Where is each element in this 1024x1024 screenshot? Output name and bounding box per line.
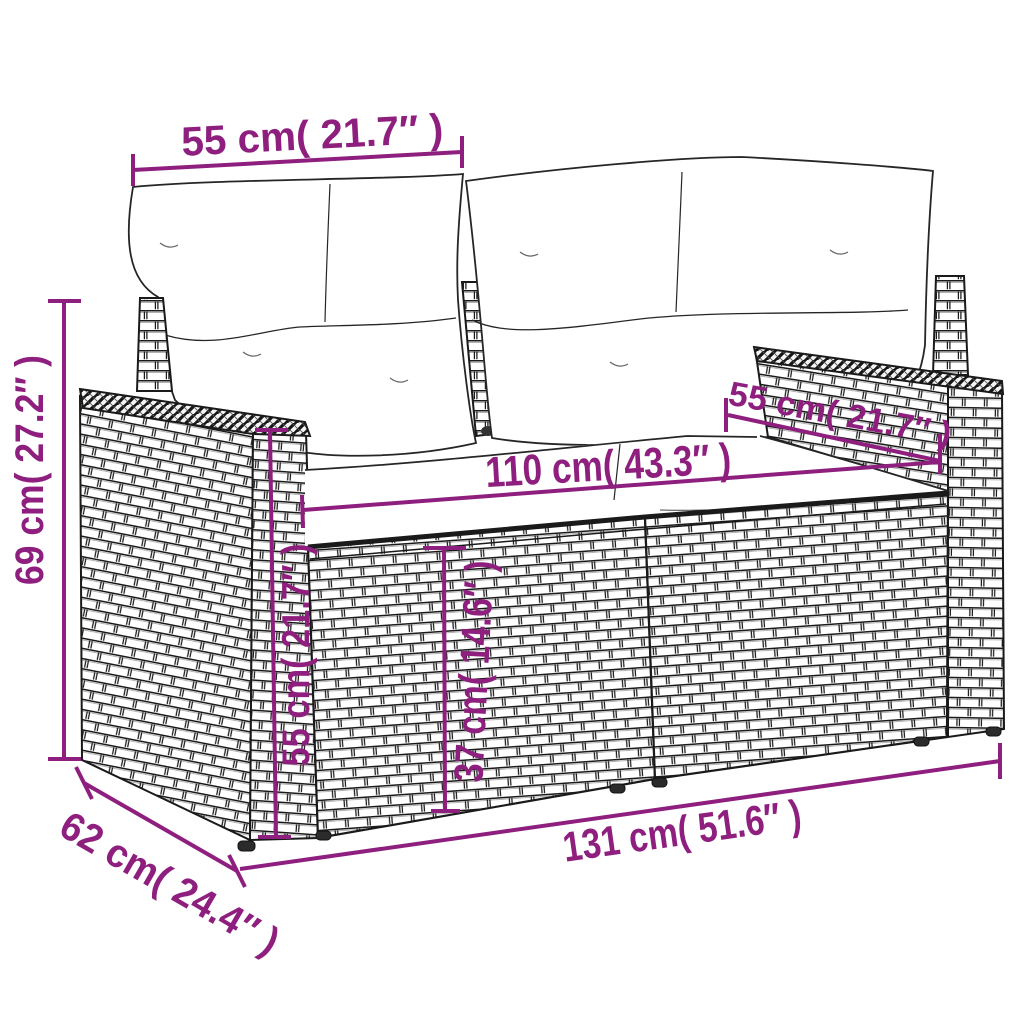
svg-text:55 cm( 21.7″ ): 55 cm( 21.7″ ) (275, 544, 318, 767)
svg-text:69 cm( 27.2″ ): 69 cm( 27.2″ ) (8, 355, 52, 585)
